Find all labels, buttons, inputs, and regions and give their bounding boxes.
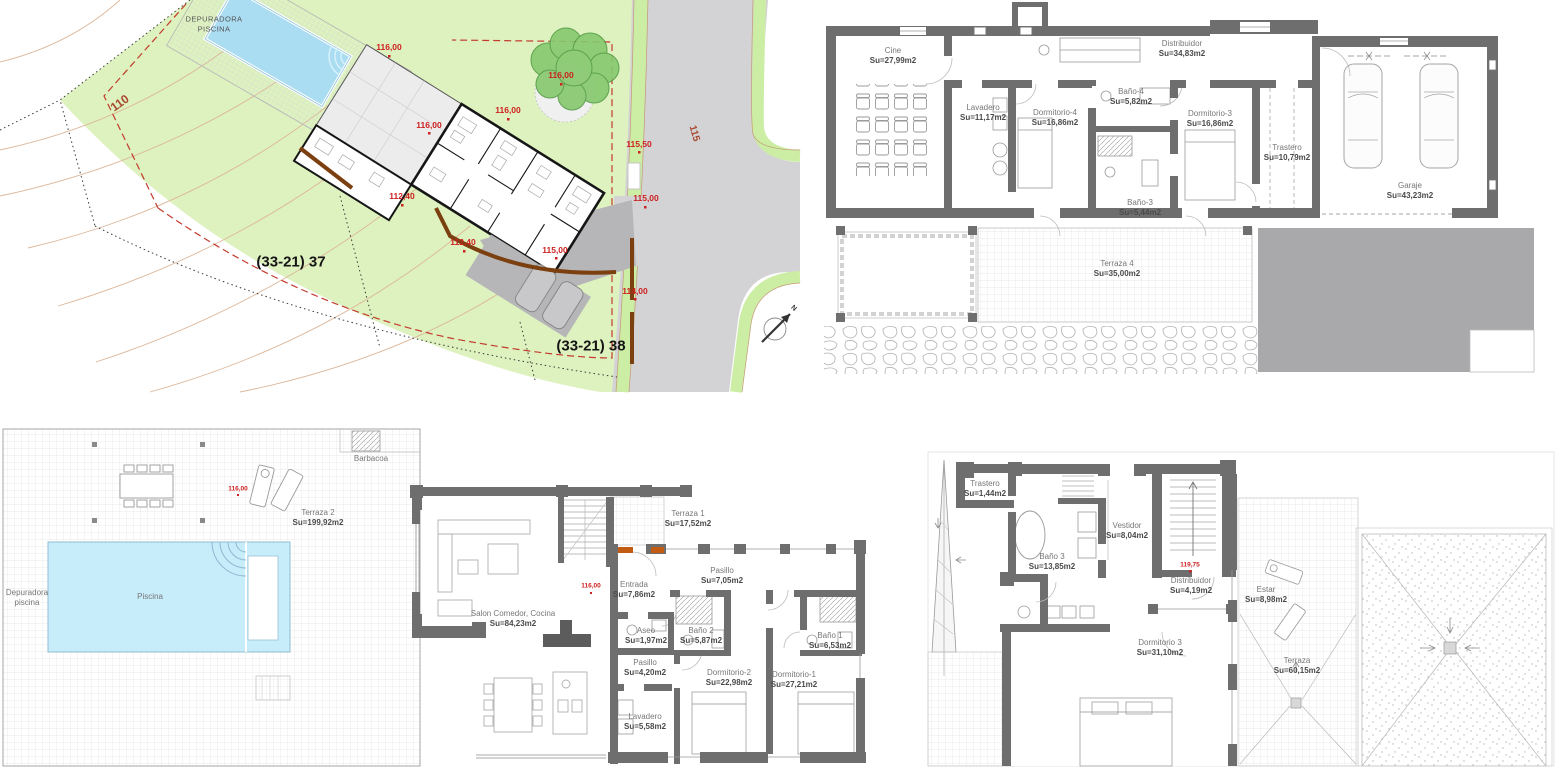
room-terraza4: Terraza 4Su=35,00m2 bbox=[1094, 259, 1140, 279]
room-bano2: Baño 2Su=5,87m2 bbox=[680, 626, 722, 646]
room-bano3-b: Baño-3Su=5,44m2 bbox=[1119, 198, 1161, 218]
room-terraza1: Terraza 1Su=17,52m2 bbox=[665, 509, 711, 529]
elev-116-terrace: 116,00 bbox=[228, 486, 248, 493]
room-cine: CineSu=27,99m2 bbox=[870, 46, 916, 66]
room-lavadero-b: LavaderoSu=11,17m2 bbox=[960, 103, 1006, 123]
room-dormitorio3-t: Dormitorio 3Su=31,10m2 bbox=[1137, 638, 1183, 658]
north-arrow bbox=[762, 314, 790, 342]
room-dormitorio2: Dormitorio-2Su=22,98m2 bbox=[706, 668, 752, 688]
elev-116-c: 116,00 bbox=[495, 105, 521, 115]
stone-band bbox=[824, 326, 1258, 374]
room-bano3-t: Baño 3Su=13,85m2 bbox=[1029, 552, 1075, 572]
cinema-seats bbox=[855, 84, 931, 176]
entry-doors bbox=[618, 547, 664, 553]
room-bano1: Baño 1Su=6,53m2 bbox=[809, 631, 851, 651]
room-estar: EstarSu=8,98m2 bbox=[1245, 585, 1287, 605]
room-entrada: EntradaSu=7,86m2 bbox=[613, 580, 655, 600]
elev-112-40-a: 112,40 bbox=[389, 191, 415, 201]
plan-sheet: DEPURADORA PISCINA 110 115 116,00 116,00… bbox=[0, 0, 1560, 768]
stairs bbox=[563, 500, 608, 560]
cypress-tree bbox=[932, 460, 956, 676]
room-terraza-t: TerrazaSu=60,15m2 bbox=[1274, 656, 1320, 676]
barbecue bbox=[352, 431, 380, 451]
room-bano4: Baño-4Su=5,82m2 bbox=[1110, 87, 1152, 107]
room-aseo: AseoSu=1,97m2 bbox=[625, 626, 667, 646]
elev-112-40-b: 112,40 bbox=[450, 237, 476, 247]
label-depuradora-piscina: DEPURADORA PISCINA bbox=[186, 14, 243, 34]
label-parcel-37: (33-21) 37 bbox=[256, 254, 325, 271]
plan-ground bbox=[3, 429, 866, 766]
room-salon: Salon Comedor, CocinaSu=84,23m2 bbox=[471, 609, 556, 629]
room-terraza2: Terraza 2Su=199,92m2 bbox=[293, 508, 344, 528]
room-dormitorio3-b: Dormitorio-3Su=16,86m2 bbox=[1187, 109, 1233, 129]
elev-116-entrada: 116,00 bbox=[581, 583, 601, 590]
terraza1-tiles bbox=[610, 497, 664, 545]
label-parcel-38: (33-21) 38 bbox=[556, 338, 625, 355]
elev-115-a: 115,00 bbox=[633, 193, 659, 203]
elev-114-00: 114,00 bbox=[622, 286, 648, 296]
room-distribuidor-b: DistribuidorSu=34,83m2 bbox=[1159, 39, 1205, 59]
room-distribuidor-t: DistribuidorSu=4,19m2 bbox=[1170, 576, 1212, 596]
plan-graphics bbox=[0, 0, 1560, 768]
room-lavadero-g: LavaderoSu=5,58m2 bbox=[624, 712, 666, 732]
room-trastero-t: TrasteroSu=1,44m2 bbox=[964, 479, 1006, 499]
room-garaje: GarajeSu=43,23m2 bbox=[1387, 181, 1433, 201]
room-depuradora2: Depuradora piscina bbox=[6, 588, 48, 608]
room-trastero-b: TrasteroSu=10,79m2 bbox=[1264, 143, 1310, 163]
room-vestidor: VestidorSu=8,04m2 bbox=[1106, 521, 1148, 541]
room-pasillo2: PasilloSu=4,20m2 bbox=[624, 658, 666, 678]
room-dormitorio1: Dormitorio-1Su=27,21m2 bbox=[771, 670, 817, 690]
elev-116-a: 116,00 bbox=[376, 42, 402, 52]
room-piscina: Piscina bbox=[137, 592, 163, 602]
roof-terrace bbox=[1238, 498, 1358, 766]
room-pasillo1: PasilloSu=7,05m2 bbox=[701, 566, 743, 586]
elev-115-b: 115,00 bbox=[542, 245, 568, 255]
elev-116-d: 116,00 bbox=[416, 120, 442, 130]
plan-top-floor bbox=[928, 452, 1554, 766]
outdoor-dining bbox=[120, 465, 173, 507]
elev-116-b: 116,00 bbox=[548, 70, 574, 80]
elev-115-50: 115,50 bbox=[626, 139, 652, 149]
room-barbacoa: Barbacoa bbox=[354, 454, 388, 464]
elev-119-75: 119,75 bbox=[1180, 562, 1200, 569]
room-dormitorio4: Dormitorio-4Su=16,86m2 bbox=[1032, 108, 1078, 128]
